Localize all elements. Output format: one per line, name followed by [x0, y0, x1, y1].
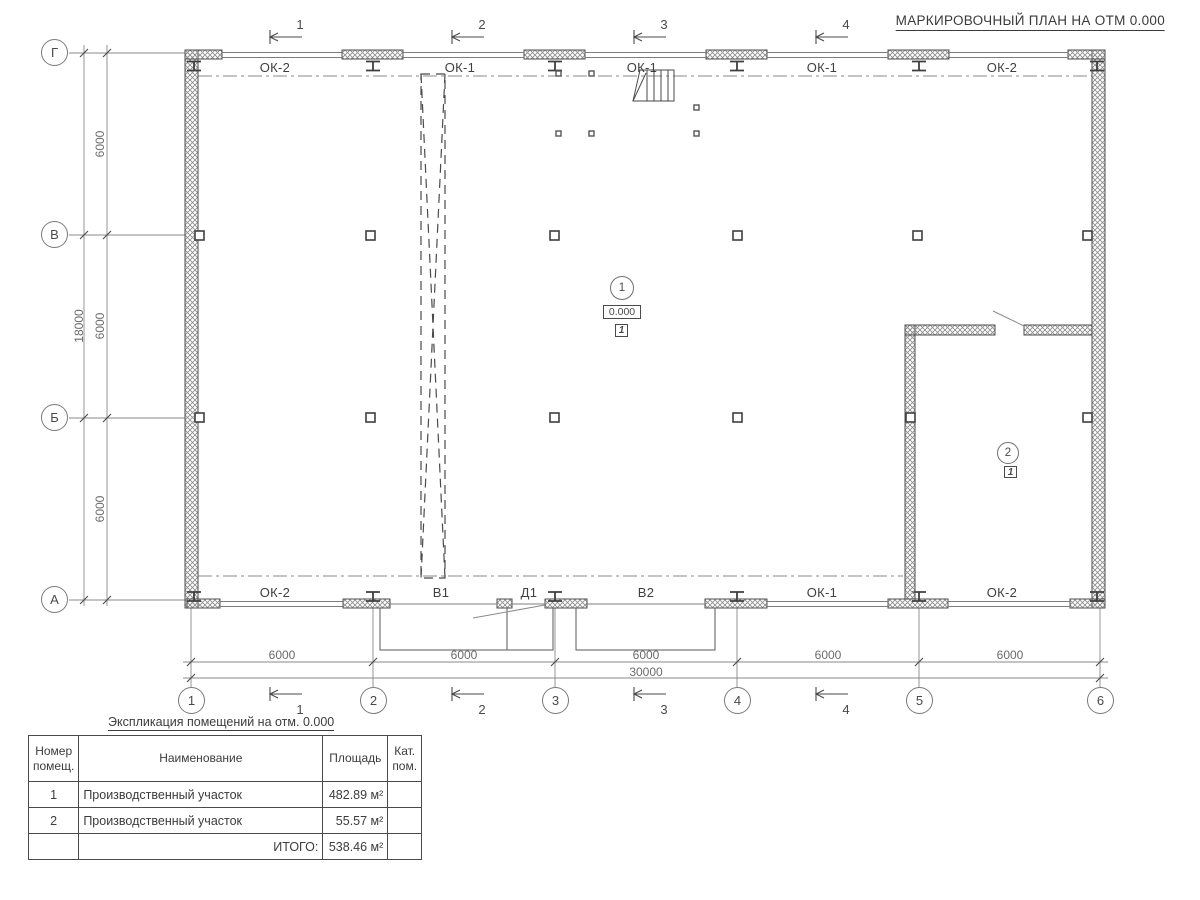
room-1-number: 1 — [610, 276, 634, 300]
dim-left-bay-3: 6000 — [93, 496, 107, 523]
axis-bubble-col-5: 5 — [906, 687, 933, 714]
room-schedule-title: Экспликация помещений на отм. 0.000 — [108, 715, 334, 731]
room-row-name: Производственный участок — [79, 782, 323, 808]
axis-bubble-col-2: 2 — [360, 687, 387, 714]
dim-bottom-bay-2: 6000 — [451, 648, 478, 662]
axis-bubble-col-1: 1 — [178, 687, 205, 714]
axis-bubble-row-v: В — [41, 221, 68, 248]
col-header-name: Наименование — [79, 736, 323, 782]
table-row: 2 Производственный участок 55.57 м² — [29, 808, 422, 834]
blueprint-canvas: МАРКИРОВОЧНЫЙ ПЛАН НА ОТМ 0.000 — [0, 0, 1200, 900]
axis-bubble-row-g: Г — [41, 39, 68, 66]
dim-left-bay-2: 6000 — [93, 313, 107, 340]
section-number-bottom-4: 4 — [842, 702, 849, 717]
section-number-bottom-2: 2 — [478, 702, 485, 717]
room-row-category — [388, 782, 422, 808]
room-1-category: 1 — [615, 324, 628, 337]
opening-label-v2: В2 — [638, 585, 655, 600]
dashed-strip — [421, 74, 445, 578]
section-number-top-1: 1 — [296, 17, 303, 32]
dim-bottom-bay-3: 6000 — [633, 648, 660, 662]
partition-door-swing — [993, 311, 1024, 326]
opening-label-ok2-right: ОК-2 — [987, 585, 1017, 600]
room-row-area: 55.57 м² — [323, 808, 388, 834]
opening-label-d1: Д1 — [521, 585, 538, 600]
dim-left-bay-1: 6000 — [93, 131, 107, 158]
total-value: 538.46 м² — [323, 834, 388, 860]
axis-bubble-col-6: 6 — [1087, 687, 1114, 714]
section-number-top-2: 2 — [478, 17, 485, 32]
section-number-top-4: 4 — [842, 17, 849, 32]
opening-label-v1: В1 — [433, 585, 450, 600]
room-row-number: 2 — [29, 808, 79, 834]
room-row-category — [388, 808, 422, 834]
dim-bottom-total: 30000 — [629, 665, 662, 679]
dim-left-total: 18000 — [72, 309, 86, 342]
dim-bottom-bay-5: 6000 — [997, 648, 1024, 662]
table-row: 1 Производственный участок 482.89 м² — [29, 782, 422, 808]
partition-walls — [905, 325, 1092, 599]
window-label-top-2: ОК-1 — [445, 60, 475, 75]
axis-bubble-row-a: А — [41, 586, 68, 613]
axis-bubble-col-3: 3 — [542, 687, 569, 714]
small-marks — [556, 71, 699, 136]
axis-bubble-row-b: Б — [41, 404, 68, 431]
col-header-category: Кат. пом. — [388, 736, 422, 782]
col-header-area: Площадь — [323, 736, 388, 782]
room-schedule-table: Номер помещ. Наименование Площадь Кат. п… — [28, 735, 422, 860]
left-axis-and-dims — [69, 45, 185, 606]
window-label-top-5: ОК-2 — [987, 60, 1017, 75]
total-empty-cell — [388, 834, 422, 860]
total-empty-cell — [29, 834, 79, 860]
section-markers-top — [270, 30, 848, 44]
total-label: ИТОГО: — [79, 834, 323, 860]
opening-label-ok2-left: ОК-2 — [260, 585, 290, 600]
window-label-top-1: ОК-2 — [260, 60, 290, 75]
section-number-bottom-3: 3 — [660, 702, 667, 717]
dim-bottom-bay-4: 6000 — [815, 648, 842, 662]
room-2-category: 1 — [1004, 466, 1017, 478]
dim-bottom-bay-1: 6000 — [269, 648, 296, 662]
room-row-number: 1 — [29, 782, 79, 808]
room-1-elevation: 0.000 — [603, 305, 641, 319]
axis-bubble-col-4: 4 — [724, 687, 751, 714]
room-row-area: 482.89 м² — [323, 782, 388, 808]
section-number-top-3: 3 — [660, 17, 667, 32]
table-header-row: Номер помещ. Наименование Площадь Кат. п… — [29, 736, 422, 782]
window-label-top-3: ОК-1 — [627, 60, 657, 75]
entrance-aprons — [380, 608, 715, 650]
room-row-name: Производственный участок — [79, 808, 323, 834]
table-total-row: ИТОГО: 538.46 м² — [29, 834, 422, 860]
col-header-number: Номер помещ. — [29, 736, 79, 782]
room-2-number: 2 — [997, 442, 1019, 464]
opening-label-ok1-bottom: ОК-1 — [807, 585, 837, 600]
window-label-top-4: ОК-1 — [807, 60, 837, 75]
